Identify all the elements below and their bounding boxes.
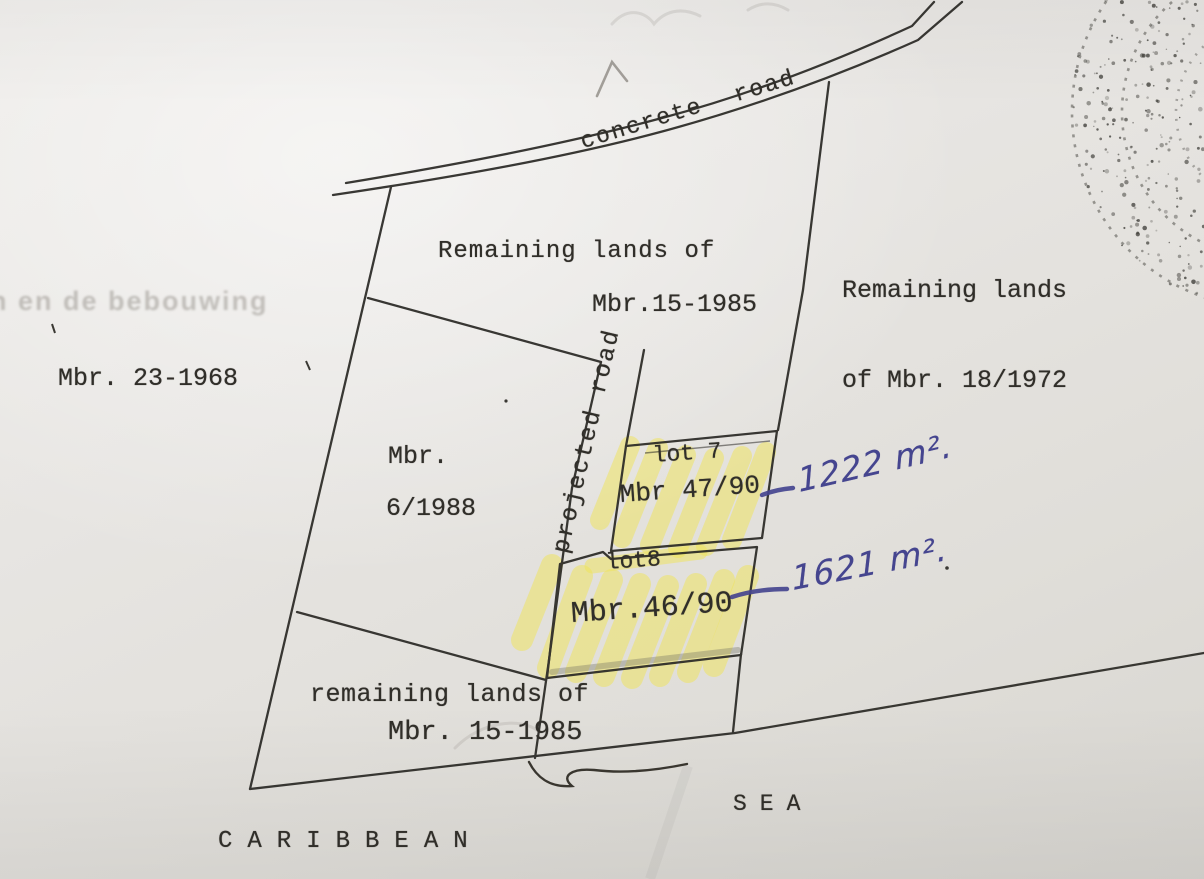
lot7-pointer-stroke xyxy=(762,488,793,495)
parcel-east-remaining-line2: of Mbr. 18/1972 xyxy=(842,368,1067,393)
lot7-name-label: lot 7 xyxy=(652,440,722,468)
east-boundary-line xyxy=(778,82,829,430)
parcel-west-outside-label: Mbr. 23-1968 xyxy=(58,366,238,391)
parcel-6-1988-north-edge xyxy=(368,298,601,362)
concrete-road-lower-line xyxy=(333,2,962,195)
east-boundary-lower-line xyxy=(733,654,741,732)
stray-ink-marks xyxy=(52,324,949,570)
paper-crease xyxy=(650,766,688,879)
parcel-south-remaining-line2: Mbr. 15-1985 xyxy=(388,720,582,747)
parcel-top-remaining-line1: Remaining lands of xyxy=(438,240,715,264)
lot8-name-label: lot8 xyxy=(605,548,662,575)
bleed-through-text: n en de bebouwing xyxy=(0,288,269,315)
parcel-6-1988-south-edge xyxy=(297,612,546,680)
caribbean-label: CARIBBEAN xyxy=(218,830,483,854)
stamp-seal xyxy=(1072,0,1204,308)
projected-road-east-line xyxy=(626,350,644,446)
parcel-center-line1: Mbr. xyxy=(388,444,448,469)
pen-squiggle xyxy=(529,762,687,786)
sea-label: SEA xyxy=(733,793,813,816)
parcel-center-line2: 6/1988 xyxy=(386,496,476,521)
parcel-top-remaining-line2: Mbr.15-1985 xyxy=(592,292,757,317)
pencil-arrow xyxy=(597,62,627,96)
concrete-road-upper-line xyxy=(346,2,934,183)
parcel-east-remaining-line1: Remaining lands xyxy=(842,278,1067,303)
parcel-south-remaining-line1: remaining lands of xyxy=(310,682,589,707)
